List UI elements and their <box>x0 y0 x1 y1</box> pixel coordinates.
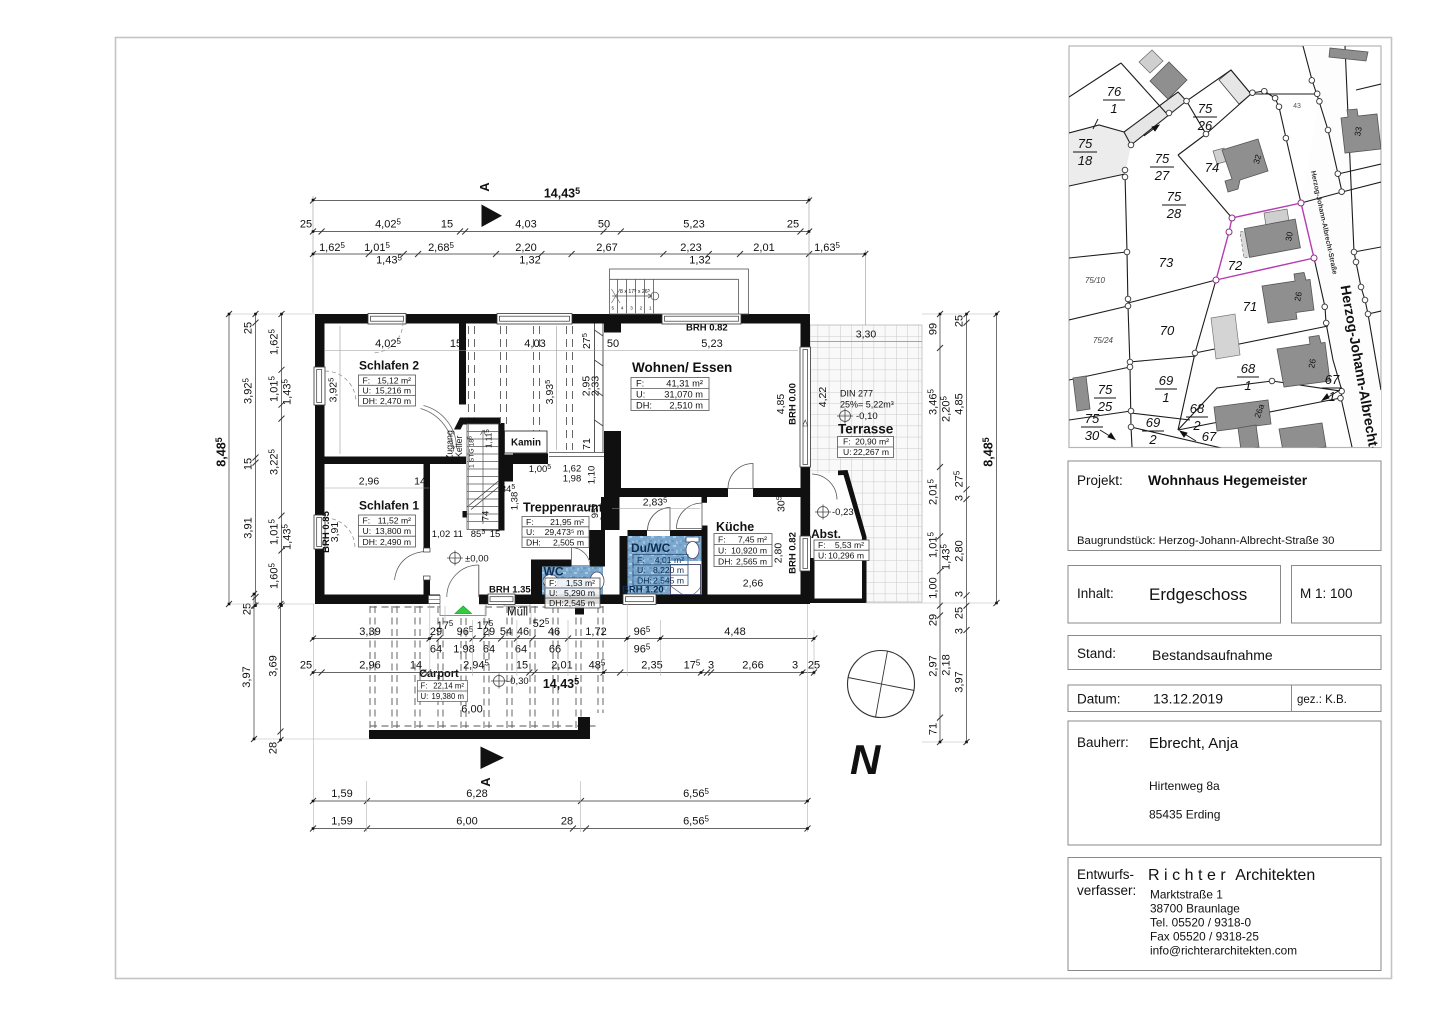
svg-text:2,35: 2,35 <box>641 660 662 672</box>
svg-text:1,53 m²: 1,53 m² <box>566 578 595 588</box>
svg-text:3,97: 3,97 <box>954 671 966 692</box>
svg-text:1: 1 <box>1244 378 1251 393</box>
svg-text:2,01: 2,01 <box>551 660 572 672</box>
svg-text:U:: U: <box>549 588 558 598</box>
svg-text:64: 64 <box>430 644 442 656</box>
svg-text:Müll: Müll <box>507 607 528 619</box>
svg-text:85435 Erding: 85435 Erding <box>1149 808 1220 822</box>
svg-text:5 4 3 2 1: 5 4 3 2 1 <box>612 306 652 311</box>
svg-text:Ebrecht, Anja: Ebrecht, Anja <box>1149 735 1239 752</box>
svg-text:1,98: 1,98 <box>453 644 474 656</box>
svg-text:info@richterarchitekten.com: info@richterarchitekten.com <box>1150 944 1297 958</box>
svg-text:A: A <box>478 777 493 787</box>
svg-text:gez.: K.B.: gez.: K.B. <box>1297 694 1347 706</box>
svg-text:75: 75 <box>1155 151 1170 166</box>
svg-text:25: 25 <box>243 322 255 334</box>
svg-text:71: 71 <box>581 438 593 450</box>
svg-text:Tel. 05520 / 9318-0: Tel. 05520 / 9318-0 <box>1150 916 1251 930</box>
svg-text:3,91: 3,91 <box>243 517 255 538</box>
svg-text:2,80: 2,80 <box>773 543 785 564</box>
svg-text:20,90 m²: 20,90 m² <box>855 437 889 447</box>
svg-text:15,12 m²: 15,12 m² <box>377 375 411 385</box>
svg-text:M 1: 100: M 1: 100 <box>1300 586 1353 601</box>
svg-text:2: 2 <box>1192 418 1201 433</box>
svg-text:15: 15 <box>450 338 462 350</box>
svg-text:15: 15 <box>516 660 528 672</box>
svg-text:64: 64 <box>505 465 516 476</box>
svg-text:-0,23: -0,23 <box>832 507 854 518</box>
svg-text:8,220 m: 8,220 m <box>653 565 684 575</box>
svg-text:WC: WC <box>544 565 564 579</box>
svg-text:U:: U: <box>818 551 827 561</box>
svg-text:Keller: Keller <box>454 435 464 458</box>
svg-text:Datum:: Datum: <box>1077 692 1121 707</box>
svg-text:1,59: 1,59 <box>331 788 352 800</box>
svg-text:F:: F: <box>363 516 371 526</box>
svg-text:76: 76 <box>1107 84 1122 99</box>
svg-text:Fax 05520 / 9318-25: Fax 05520 / 9318-25 <box>1150 930 1259 944</box>
svg-text:-0,10: -0,10 <box>856 411 878 422</box>
svg-text:14,435: 14,435 <box>544 186 580 201</box>
svg-text:3,30: 3,30 <box>856 329 877 341</box>
svg-text:19,380 m: 19,380 m <box>431 692 464 701</box>
svg-text:DH:: DH: <box>718 556 733 566</box>
svg-text:verfasser:: verfasser: <box>1077 883 1136 898</box>
svg-text:Kamin: Kamin <box>511 438 541 449</box>
svg-text:U:: U: <box>363 526 372 536</box>
svg-text:Marktstraße 1: Marktstraße 1 <box>1150 888 1223 902</box>
svg-text:30: 30 <box>1085 428 1100 443</box>
svg-text:1,72: 1,72 <box>585 626 606 638</box>
svg-text:BRH 1.20: BRH 1.20 <box>622 585 664 596</box>
svg-text:2,545 m: 2,545 m <box>564 598 595 608</box>
svg-text:67: 67 <box>1325 372 1340 387</box>
svg-text:74: 74 <box>1205 160 1219 175</box>
svg-text:BRH 0.82: BRH 0.82 <box>686 323 728 334</box>
svg-text:43: 43 <box>1293 103 1301 110</box>
svg-text:2,07: 2,07 <box>599 503 610 522</box>
svg-text:33: 33 <box>1352 126 1364 137</box>
svg-text:F:: F: <box>637 555 645 565</box>
svg-text:2,80: 2,80 <box>954 540 966 561</box>
svg-text:74: 74 <box>481 511 492 522</box>
svg-text:6,00: 6,00 <box>456 816 477 828</box>
svg-text:5,53 m²: 5,53 m² <box>835 540 864 550</box>
svg-text:F:: F: <box>421 682 428 691</box>
svg-text:3: 3 <box>954 628 966 634</box>
svg-text:N: N <box>850 736 882 783</box>
svg-text:U:: U: <box>526 527 535 537</box>
svg-text:Wohnhaus Hegemeister: Wohnhaus Hegemeister <box>1148 472 1308 488</box>
svg-text:14,435: 14,435 <box>543 677 579 692</box>
svg-text:75: 75 <box>1085 411 1100 426</box>
svg-text:Du/WC: Du/WC <box>631 541 671 555</box>
svg-text:2,96: 2,96 <box>359 660 380 672</box>
svg-text:Terrasse: Terrasse <box>838 422 894 437</box>
svg-text:4,03: 4,03 <box>515 219 536 231</box>
svg-text:18: 18 <box>1078 153 1093 168</box>
svg-text:U:: U: <box>636 389 645 399</box>
svg-text:14: 14 <box>410 660 422 672</box>
svg-text:46: 46 <box>517 626 529 638</box>
svg-text:4,85: 4,85 <box>954 393 966 414</box>
svg-text:DH:: DH: <box>363 396 378 406</box>
svg-text:75: 75 <box>1198 101 1213 116</box>
svg-text:1,10: 1,10 <box>587 466 598 485</box>
svg-text:BRH 0.82: BRH 0.82 <box>788 532 799 574</box>
svg-text:BRH 0.00: BRH 0.00 <box>788 383 799 425</box>
svg-text:2,23: 2,23 <box>680 242 701 254</box>
svg-text:70: 70 <box>1160 323 1175 338</box>
svg-text:4,22: 4,22 <box>817 387 829 408</box>
svg-text:38700 Braunlage: 38700 Braunlage <box>1150 902 1240 916</box>
svg-text:3: 3 <box>708 660 714 672</box>
svg-text:BRH 1.35: BRH 1.35 <box>489 585 531 596</box>
svg-text:F:: F: <box>549 578 557 588</box>
svg-text:6,00: 6,00 <box>461 704 482 716</box>
svg-text:Küche: Küche <box>716 520 754 534</box>
svg-text:±0,00: ±0,00 <box>465 554 489 565</box>
svg-text:F:: F: <box>363 375 371 385</box>
svg-text:22,267 m: 22,267 m <box>853 447 889 457</box>
svg-text:67: 67 <box>1202 429 1217 444</box>
svg-text:25: 25 <box>954 315 966 327</box>
svg-text:75: 75 <box>1098 382 1113 397</box>
svg-text:15: 15 <box>243 458 255 470</box>
svg-text:5,23: 5,23 <box>701 338 722 350</box>
svg-text:Bestandsaufnahme: Bestandsaufnahme <box>1152 647 1273 663</box>
svg-text:2,97: 2,97 <box>928 655 940 676</box>
svg-text:15: 15 <box>441 219 453 231</box>
svg-text:29: 29 <box>483 626 495 638</box>
svg-text:29,473⁵ m: 29,473⁵ m <box>545 527 584 537</box>
svg-text:2,490 m: 2,490 m <box>380 537 411 547</box>
svg-text:25: 25 <box>300 660 312 672</box>
svg-text:5,290 m: 5,290 m <box>564 588 595 598</box>
svg-text:75/10: 75/10 <box>1085 276 1106 285</box>
svg-text:-0,30: -0,30 <box>507 676 529 687</box>
svg-text:25: 25 <box>300 219 312 231</box>
svg-text:2,01: 2,01 <box>753 242 774 254</box>
svg-text:DH:: DH: <box>549 598 564 608</box>
svg-text:5,23: 5,23 <box>683 219 704 231</box>
svg-text:71: 71 <box>1243 299 1257 314</box>
svg-text:11,52 m²: 11,52 m² <box>378 516 411 526</box>
svg-text:F:: F: <box>636 378 644 388</box>
svg-text:10,920 m: 10,920 m <box>731 545 767 555</box>
svg-text:3,69: 3,69 <box>268 655 280 676</box>
svg-text:U:: U: <box>843 447 852 457</box>
svg-text:U:: U: <box>718 545 727 555</box>
svg-text:3,39: 3,39 <box>359 626 380 638</box>
svg-text:DH:: DH: <box>363 537 378 547</box>
svg-text:64: 64 <box>483 644 495 656</box>
svg-text:4,48: 4,48 <box>724 626 745 638</box>
svg-text:1,38: 1,38 <box>510 492 521 511</box>
svg-text:4,01 m²: 4,01 m² <box>655 555 684 565</box>
svg-text:1: 1 <box>1162 390 1169 405</box>
svg-text:26: 26 <box>1197 118 1213 133</box>
svg-text:Inhalt:: Inhalt: <box>1077 586 1114 601</box>
svg-text:2,470 m: 2,470 m <box>380 396 411 406</box>
svg-text:F:: F: <box>526 517 534 527</box>
svg-text:U:: U: <box>421 692 429 701</box>
svg-text:Wohnen/ Essen: Wohnen/ Essen <box>632 360 732 375</box>
svg-text:F:: F: <box>818 540 826 550</box>
svg-text:25: 25 <box>787 219 799 231</box>
svg-text:2,565 m: 2,565 m <box>736 556 767 566</box>
svg-text:DIN 277: DIN 277 <box>840 389 873 399</box>
svg-text:1: 1 <box>1110 101 1117 116</box>
svg-text:7,45 m²: 7,45 m² <box>738 534 767 544</box>
svg-text:26: 26 <box>1306 358 1318 369</box>
svg-text:3,97: 3,97 <box>241 666 253 687</box>
svg-text:Entwurfs-: Entwurfs- <box>1077 867 1134 882</box>
svg-text:2,66: 2,66 <box>742 660 763 672</box>
svg-text:Schlafen 2: Schlafen 2 <box>359 359 419 373</box>
svg-text:F:: F: <box>718 534 726 544</box>
svg-text:2,505 m: 2,505 m <box>553 537 584 547</box>
svg-text:71: 71 <box>928 723 940 735</box>
svg-text:75: 75 <box>1167 189 1182 204</box>
svg-text:22,14 m²: 22,14 m² <box>433 682 464 691</box>
svg-text:30: 30 <box>1283 231 1295 242</box>
svg-text:28: 28 <box>1166 206 1182 221</box>
svg-text:50: 50 <box>598 219 610 231</box>
svg-text:2,66: 2,66 <box>743 578 764 590</box>
svg-text:28: 28 <box>268 742 280 754</box>
svg-text:6,28: 6,28 <box>466 788 487 800</box>
svg-text:Stand:: Stand: <box>1077 646 1116 661</box>
svg-text:Projekt:: Projekt: <box>1077 473 1123 488</box>
svg-text:1,00: 1,00 <box>928 577 940 598</box>
svg-text:29: 29 <box>928 614 940 626</box>
svg-text:1 STG 185: 1 STG 185 <box>468 436 476 468</box>
svg-text:1,02: 1,02 <box>432 529 451 540</box>
svg-text:66: 66 <box>549 644 561 656</box>
svg-text:69: 69 <box>1159 373 1173 388</box>
svg-text:Hirtenweg 8a: Hirtenweg 8a <box>1149 779 1220 793</box>
svg-text:11: 11 <box>453 529 463 540</box>
svg-text:28: 28 <box>561 816 573 828</box>
svg-text:3: 3 <box>954 495 966 501</box>
svg-text:1,59: 1,59 <box>331 816 352 828</box>
svg-text:2,18: 2,18 <box>941 654 953 675</box>
svg-text:75/24: 75/24 <box>1093 336 1114 345</box>
svg-text:2,33: 2,33 <box>590 376 602 397</box>
svg-text:27: 27 <box>1154 168 1170 183</box>
svg-text:15: 15 <box>490 529 501 540</box>
svg-text:54: 54 <box>500 626 512 638</box>
svg-text:2,67: 2,67 <box>596 242 617 254</box>
svg-text:2,96: 2,96 <box>359 476 380 488</box>
svg-text:75: 75 <box>1078 136 1093 151</box>
svg-text:DH:: DH: <box>526 537 541 547</box>
svg-text:2,510 m: 2,510 m <box>669 400 703 410</box>
svg-text:1,32: 1,32 <box>689 255 710 267</box>
svg-text:F:: F: <box>843 437 851 447</box>
svg-text:Baugrundstück: Herzog-Johann-A: Baugrundstück: Herzog-Johann-Albrecht-St… <box>1077 535 1334 547</box>
svg-text:Erdgeschoss: Erdgeschoss <box>1149 585 1247 604</box>
svg-text:72: 72 <box>1228 258 1243 273</box>
svg-text:2: 2 <box>1148 432 1157 447</box>
svg-text:4,03: 4,03 <box>524 338 545 350</box>
svg-text:13.12.2019: 13.12.2019 <box>1153 691 1223 707</box>
svg-text:68: 68 <box>1190 401 1205 416</box>
svg-text:46: 46 <box>548 626 560 638</box>
svg-text:99: 99 <box>928 323 940 335</box>
svg-text:Abst.: Abst. <box>811 527 841 541</box>
svg-text:U:: U: <box>637 565 646 575</box>
svg-text:U:: U: <box>363 386 372 396</box>
svg-text:15,216 m: 15,216 m <box>375 386 411 396</box>
svg-text:A: A <box>477 182 492 192</box>
svg-text:21,95 m²: 21,95 m² <box>550 517 584 527</box>
svg-text:25: 25 <box>242 603 254 615</box>
svg-text:Carport: Carport <box>419 668 459 680</box>
svg-text:1,32: 1,32 <box>519 255 540 267</box>
svg-text:Bauherr:: Bauherr: <box>1077 735 1129 750</box>
svg-text:3,91: 3,91 <box>329 522 341 543</box>
svg-text:25: 25 <box>954 607 966 619</box>
svg-text:1,98: 1,98 <box>563 474 582 485</box>
svg-text:69: 69 <box>1146 415 1160 430</box>
svg-text:Zugang: Zugang <box>445 430 455 460</box>
svg-text:4,85: 4,85 <box>775 394 787 415</box>
svg-text:2,20: 2,20 <box>515 242 536 254</box>
svg-text:Schlafen 1: Schlafen 1 <box>359 499 419 513</box>
svg-text:3: 3 <box>792 660 798 672</box>
svg-text:68: 68 <box>1241 361 1256 376</box>
svg-text:31,070 m: 31,070 m <box>664 389 703 399</box>
svg-text:DH:: DH: <box>636 400 652 410</box>
svg-text:29: 29 <box>430 626 442 638</box>
svg-text:73: 73 <box>1159 255 1174 270</box>
svg-text:25%= 5,22m³: 25%= 5,22m³ <box>840 400 894 410</box>
svg-text:14: 14 <box>414 476 426 488</box>
svg-text:13,800 m: 13,800 m <box>375 526 411 536</box>
svg-text:41,31 m²: 41,31 m² <box>666 378 703 388</box>
svg-text:26: 26 <box>1292 291 1304 302</box>
svg-text:3: 3 <box>954 591 966 597</box>
svg-text:50: 50 <box>607 338 619 350</box>
svg-text:10,296 m: 10,296 m <box>828 551 864 561</box>
